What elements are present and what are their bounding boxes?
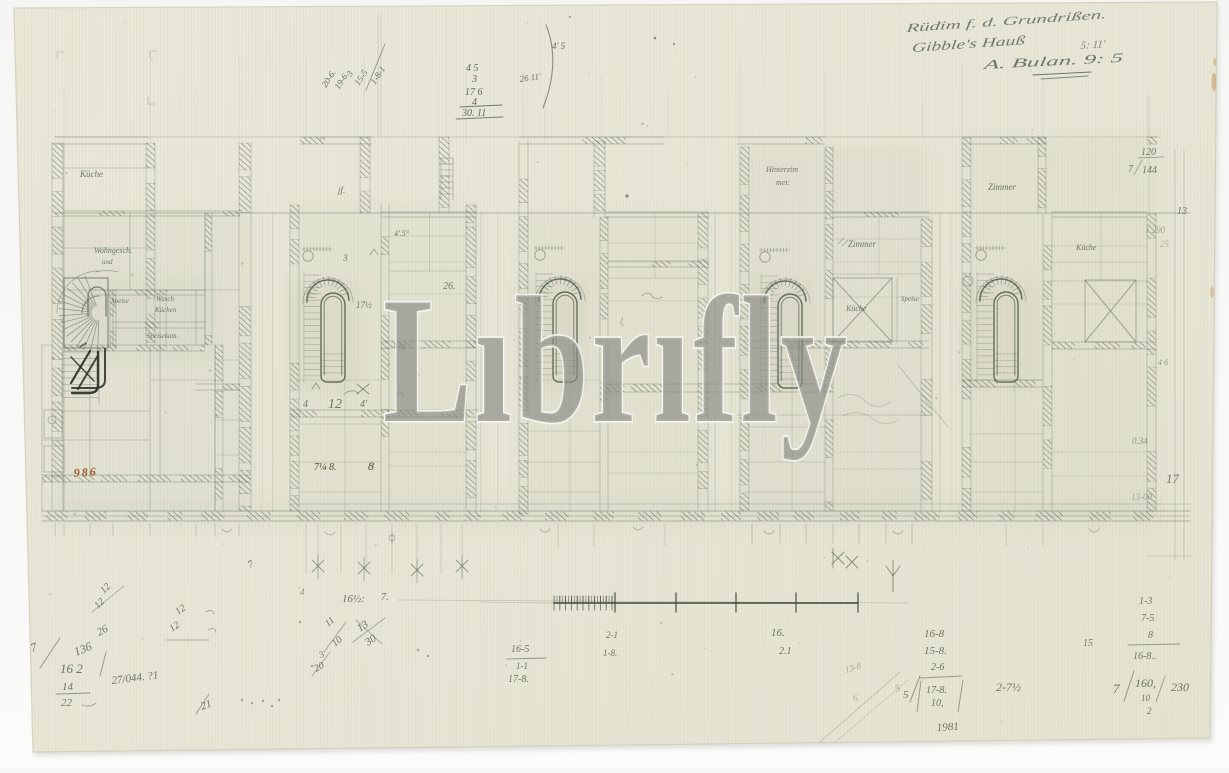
svg-text:16-8..: 16-8.. xyxy=(1133,651,1156,662)
svg-text:15-8.: 15-8. xyxy=(924,645,947,657)
svg-text:16 2: 16 2 xyxy=(60,661,83,676)
svg-text:16-8: 16-8 xyxy=(924,628,945,640)
svg-text:17: 17 xyxy=(1166,471,1180,486)
svg-text:4: 4 xyxy=(300,587,305,597)
svg-text:8: 8 xyxy=(1148,630,1153,641)
svg-text:10: 10 xyxy=(1141,693,1151,703)
svg-text:1981: 1981 xyxy=(936,720,959,734)
svg-text:1-1: 1-1 xyxy=(516,661,528,671)
svg-text:230: 230 xyxy=(1171,680,1189,694)
svg-text:6.: 6. xyxy=(853,693,860,703)
svg-text:7: 7 xyxy=(1113,681,1120,696)
svg-text:25: 25 xyxy=(1160,239,1170,249)
svg-text:3: 3 xyxy=(471,74,477,85)
svg-text:1-3: 1-3 xyxy=(1139,596,1152,607)
svg-text:Küche: Küche xyxy=(79,169,103,179)
svg-text:2.1: 2.1 xyxy=(779,646,792,657)
svg-text:17-8.: 17-8. xyxy=(508,674,529,685)
svg-text:2-6: 2-6 xyxy=(931,662,944,673)
svg-text:Lıbrıfly: Lıbrıfly xyxy=(383,261,850,461)
svg-text:16-5: 16-5 xyxy=(511,644,529,655)
svg-text:5: 5 xyxy=(903,689,909,701)
svg-text:2-1: 2-1 xyxy=(606,630,618,640)
svg-text:5: 11': 5: 11' xyxy=(1080,38,1107,52)
svg-text:15: 15 xyxy=(1083,638,1093,649)
svg-text:14: 14 xyxy=(62,681,74,693)
svg-text:4 5: 4 5 xyxy=(466,63,479,74)
svg-text:2-7½: 2-7½ xyxy=(996,680,1021,694)
svg-text:4' 5: 4' 5 xyxy=(552,41,566,51)
svg-text:160,: 160, xyxy=(1135,676,1156,690)
svg-text:1-8.: 1-8. xyxy=(603,648,617,658)
svg-text:16½:: 16½: xyxy=(342,593,365,605)
svg-text:4 6: 4 6 xyxy=(1158,358,1168,367)
svg-text:10,: 10, xyxy=(931,698,944,709)
svg-text:13: 13 xyxy=(1177,206,1187,217)
svg-text:7.: 7. xyxy=(381,592,389,603)
svg-text:jf.: jf. xyxy=(337,185,345,195)
svg-text:17-8.: 17-8. xyxy=(926,685,947,696)
svg-text:30. 11: 30. 11 xyxy=(461,108,486,119)
svg-text:16.: 16. xyxy=(771,627,785,639)
svg-text:22: 22 xyxy=(61,697,73,709)
svg-text:2: 2 xyxy=(1147,706,1152,716)
svg-text:7-5: 7-5 xyxy=(1141,613,1154,624)
